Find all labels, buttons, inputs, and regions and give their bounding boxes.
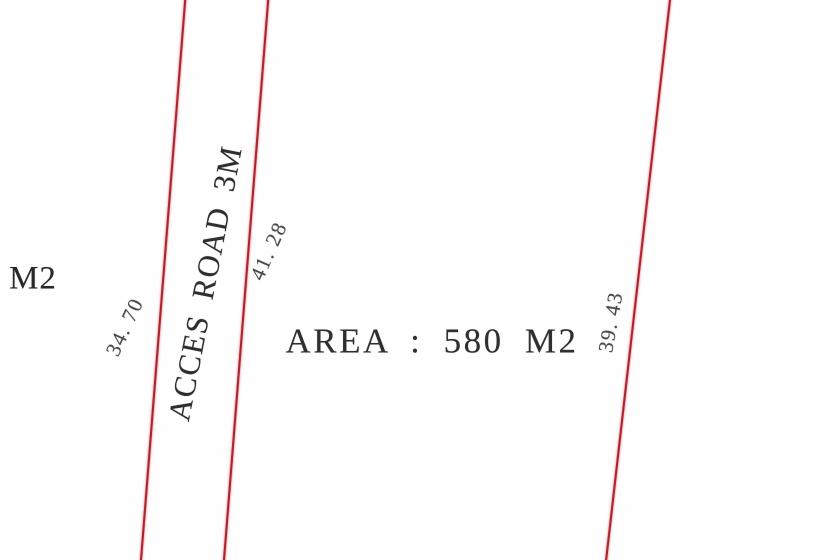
- dimension-41-28-label: 41. 28: [247, 219, 291, 284]
- access-road-label: ACCES ROAD 3M: [163, 143, 247, 424]
- dimension-39-43-label: 39. 43: [595, 290, 626, 354]
- parcel-east-boundary-line: [604, 0, 671, 560]
- survey-plot-diagram: M2 34. 70 ACCES ROAD 3M 41. 28 AREA : 58…: [0, 0, 840, 560]
- neighbor-parcel-m2-label: M2: [9, 263, 57, 296]
- dimension-34-70-label: 34. 70: [102, 295, 147, 360]
- parcel-area-label: AREA : 580 M2: [286, 324, 579, 359]
- access-road-west-boundary-line: [139, 0, 186, 560]
